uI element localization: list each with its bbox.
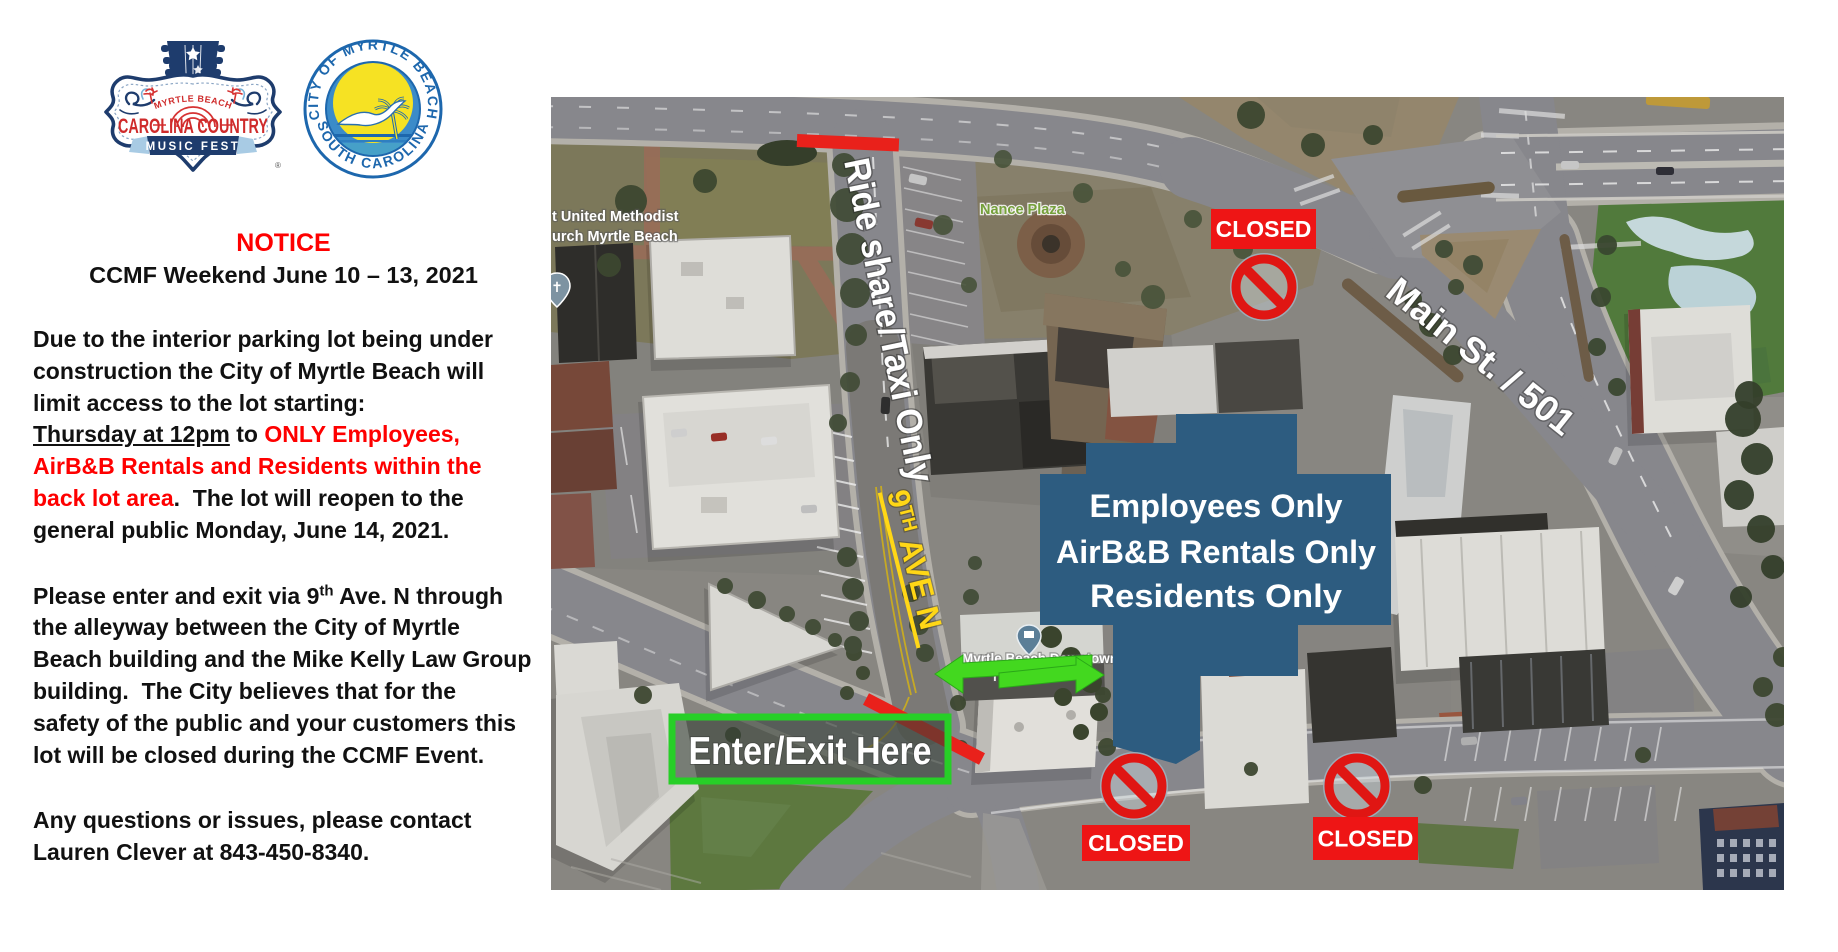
svg-text:✝: ✝ (551, 279, 563, 295)
svg-text:Residents Only: Residents Only (1090, 578, 1342, 614)
svg-text:CAROLINA COUNTRY: CAROLINA COUNTRY (118, 115, 268, 138)
svg-text:Nance Plaza: Nance Plaza (980, 202, 1066, 218)
svg-text:®: ® (275, 161, 281, 170)
svg-text:AirB&B Rentals Only: AirB&B Rentals Only (1056, 534, 1376, 570)
svg-text:CLOSED: CLOSED (1216, 216, 1312, 242)
svg-text:Enter/Exit Here: Enter/Exit Here (689, 730, 932, 773)
svg-text:Employees Only: Employees Only (1090, 488, 1343, 524)
svg-text:CLOSED: CLOSED (1318, 826, 1414, 852)
svg-text:MUSIC FEST: MUSIC FEST (146, 141, 241, 153)
svg-text:CLOSED: CLOSED (1088, 830, 1184, 856)
svg-text:urch Myrtle Beach: urch Myrtle Beach (552, 229, 678, 245)
svg-text:t United Methodist: t United Methodist (552, 209, 679, 225)
